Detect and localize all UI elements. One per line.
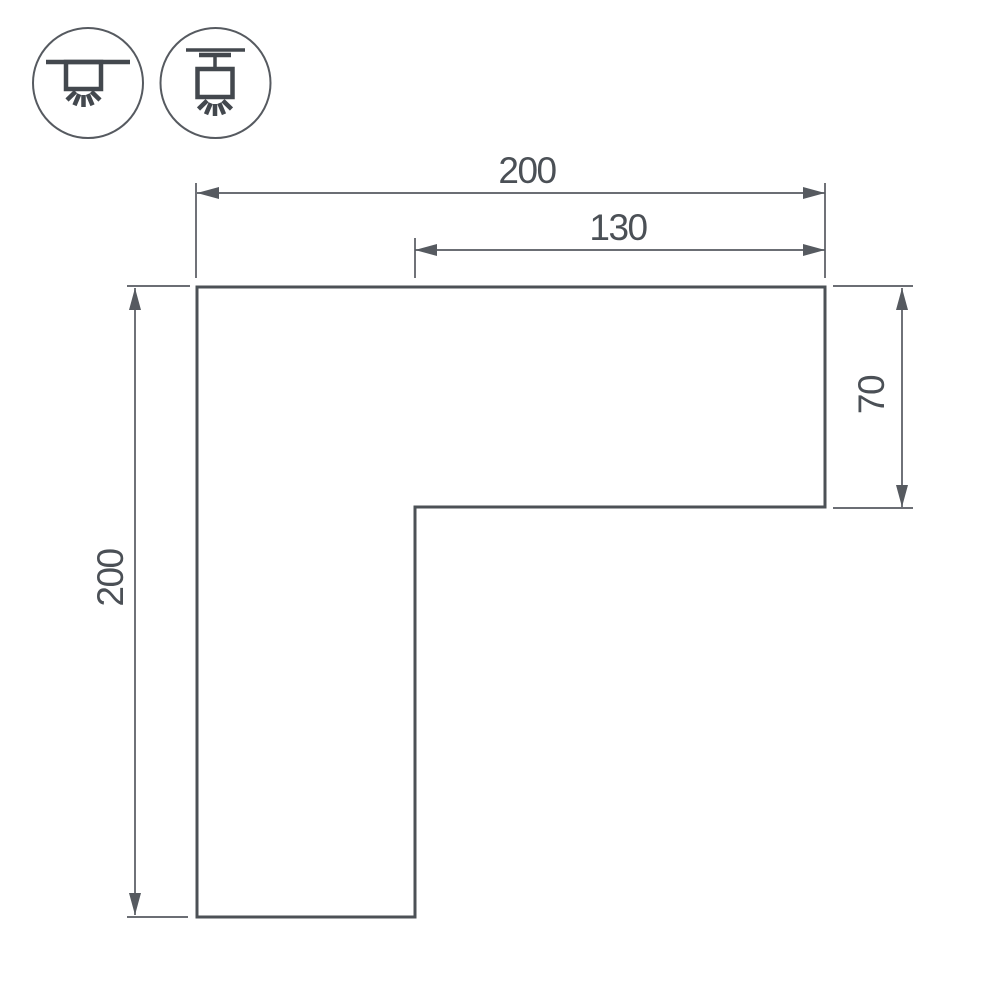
dimension-left-height: 200 — [90, 286, 190, 917]
dimension-top-width-label: 200 — [498, 150, 556, 191]
recessed-ceiling-mount-icon — [33, 28, 143, 138]
arrowhead-top — [896, 288, 908, 310]
arrowhead-right — [803, 244, 825, 256]
recessed-luminaire-box — [66, 62, 101, 89]
icon-circle-border — [33, 28, 143, 138]
light-rays — [67, 92, 100, 107]
luminaire-box — [198, 69, 233, 97]
dimension-right-height-label: 70 — [851, 375, 892, 414]
light-rays — [199, 101, 232, 116]
dimension-drawing-canvas: 200 130 200 70 — [0, 0, 1000, 1000]
dimension-drawing: 200 130 200 70 — [0, 0, 1000, 1000]
arrowhead-top — [129, 288, 141, 310]
profile-outline — [197, 287, 825, 917]
dimension-top-inner-width: 130 — [415, 207, 825, 278]
surface-ceiling-mount-icon — [161, 28, 271, 138]
dimension-right-height: 70 — [833, 286, 913, 508]
arrowhead-left — [415, 244, 437, 256]
arrowhead-left — [197, 187, 219, 199]
dimension-left-height-label: 200 — [90, 548, 131, 606]
dimension-top-width: 200 — [196, 150, 825, 278]
dimension-top-inner-width-label: 130 — [589, 207, 647, 248]
icon-circle-border — [161, 28, 271, 138]
arrowhead-bottom — [896, 485, 908, 507]
arrowhead-bottom — [129, 893, 141, 915]
arrowhead-right — [803, 187, 825, 199]
